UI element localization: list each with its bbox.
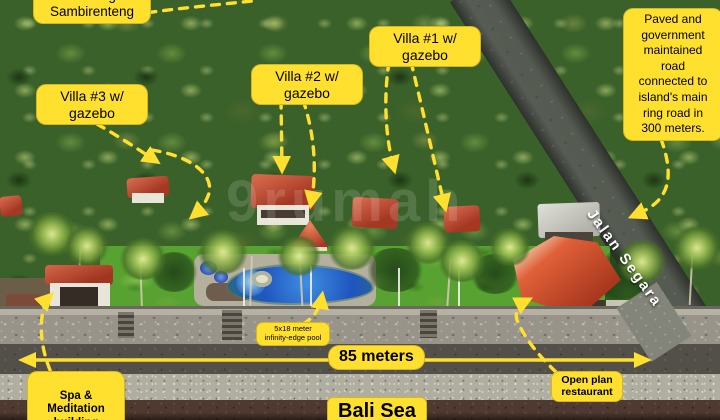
palm-crown	[436, 240, 488, 282]
callout-pool: 5x18 meter infinity-edge pool	[256, 322, 330, 346]
spa-building-opening	[60, 287, 98, 306]
palm-crown	[64, 226, 110, 266]
villa-roof	[443, 205, 480, 233]
aerial-photo: 9rumah Jalan Segara Our Village	[0, 0, 720, 420]
callout-sea: Bali Sea	[327, 397, 427, 420]
beach-stairs	[222, 310, 242, 340]
callout-spa: Spa & Meditation building The only 2 sto…	[27, 371, 125, 420]
palm-crown	[276, 236, 322, 276]
villa-2-veranda	[261, 210, 305, 218]
palm-crown	[118, 238, 168, 280]
pool-float-ring	[252, 271, 272, 287]
sea-wall	[0, 306, 720, 346]
callout-village: Our Village: Sambirenteng	[33, 0, 151, 24]
palm-crown	[326, 226, 378, 270]
palm-crown	[488, 228, 532, 266]
palm-crown	[672, 226, 720, 270]
villa-1-roof	[351, 197, 399, 229]
callout-villa2: Villa #2 w/ gazebo	[251, 64, 363, 105]
callout-restaurant: Open plan restaurant	[551, 371, 623, 402]
beach-stairs	[118, 312, 134, 338]
callout-road-info: Paved and government maintained road con…	[623, 8, 720, 141]
palm-crown	[196, 230, 250, 274]
villa-roof	[0, 195, 23, 217]
villa-3-wall	[132, 193, 164, 203]
callout-villa1: Villa #1 w/ gazebo	[369, 26, 481, 67]
callout-beach-length: 85 meters	[328, 345, 425, 370]
spa-title: Spa & Meditation building	[47, 390, 105, 420]
beach-stairs	[420, 310, 437, 338]
flag-pole	[398, 268, 400, 308]
callout-villa3: Villa #3 w/ gazebo	[36, 84, 148, 125]
spa-building-roof	[45, 265, 113, 285]
flag-pole	[243, 268, 245, 308]
